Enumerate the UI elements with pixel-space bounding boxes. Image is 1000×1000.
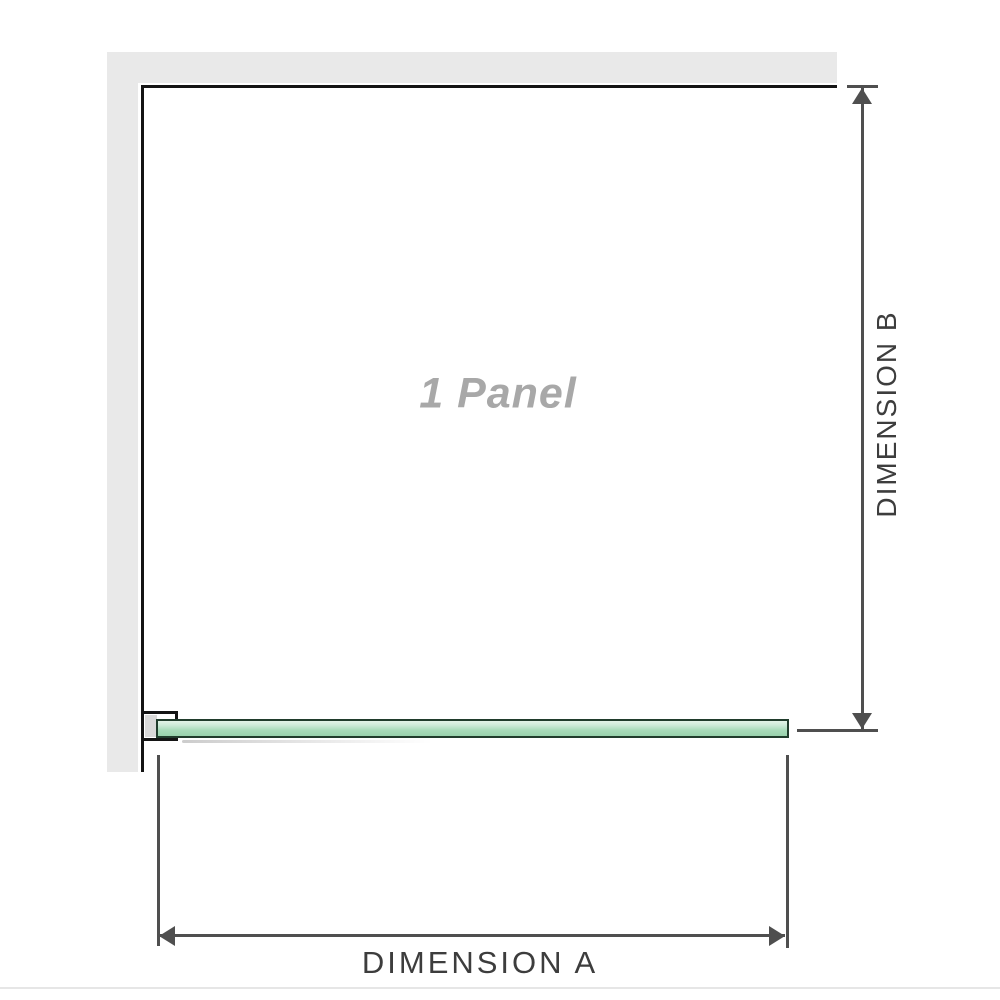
image-bottom-hairline [0, 987, 1000, 989]
enclosure-left-edge [141, 85, 144, 772]
dimension-a-right-extension [786, 755, 789, 948]
dimension-a-line [159, 934, 785, 937]
dimension-a-label: DIMENSION A [362, 945, 598, 981]
arrow-down-icon [852, 713, 872, 729]
dimension-a-left-extension [157, 755, 160, 946]
panel-count-label: 1 Panel [419, 370, 577, 419]
glass-panel-shadow [182, 740, 432, 743]
arrow-right-icon [769, 926, 785, 946]
wall-top [107, 52, 837, 83]
arrow-left-icon [159, 926, 175, 946]
arrow-up-icon [852, 88, 872, 104]
diagram-canvas: DIMENSION B DIMENSION A 1 Panel [0, 0, 1000, 1000]
dimension-b-label: DIMENSION B [871, 310, 903, 517]
glass-panel [156, 719, 789, 738]
dimension-b-bottom-tick [797, 729, 878, 732]
wall-left [107, 52, 138, 772]
dimension-b-line [861, 88, 864, 729]
enclosure-top-edge [141, 85, 837, 88]
